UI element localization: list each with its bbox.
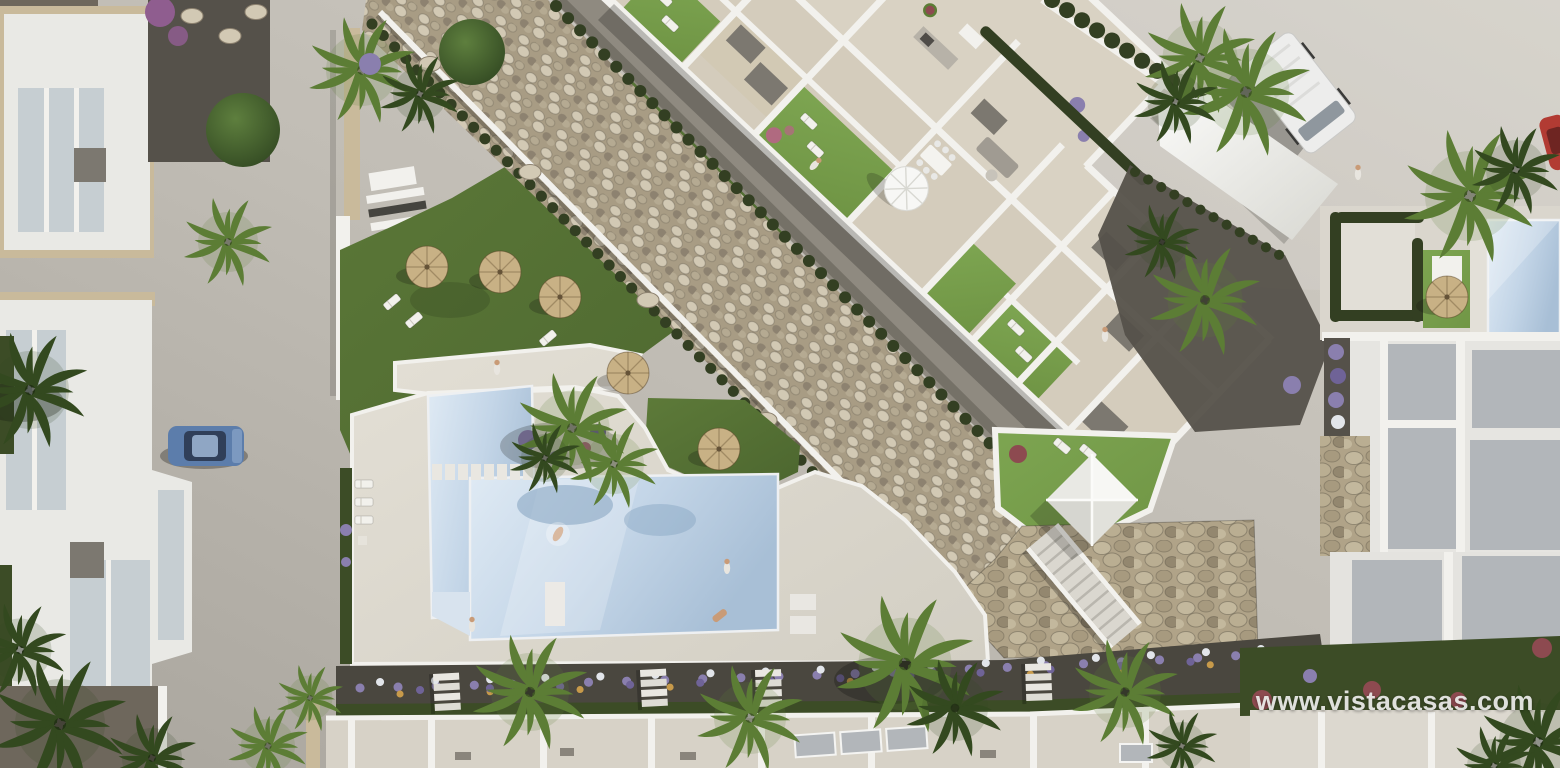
- gray-roof: [1472, 350, 1560, 428]
- ac-unit: [70, 542, 104, 578]
- ac-unit: [74, 148, 106, 182]
- scene-canvas: [0, 0, 1560, 768]
- parked-car-blue: [160, 426, 248, 469]
- stone-wall: [1320, 436, 1370, 556]
- pool-shower: [545, 582, 565, 626]
- gray-roof: [1470, 440, 1560, 550]
- round-tree: [206, 93, 280, 167]
- pedestrian: [1355, 165, 1361, 180]
- watermark: www.vistacasas.com: [1256, 686, 1534, 717]
- gray-roof: [1388, 344, 1456, 549]
- aerial-render-scene: www.vistacasas.com: [0, 0, 1560, 768]
